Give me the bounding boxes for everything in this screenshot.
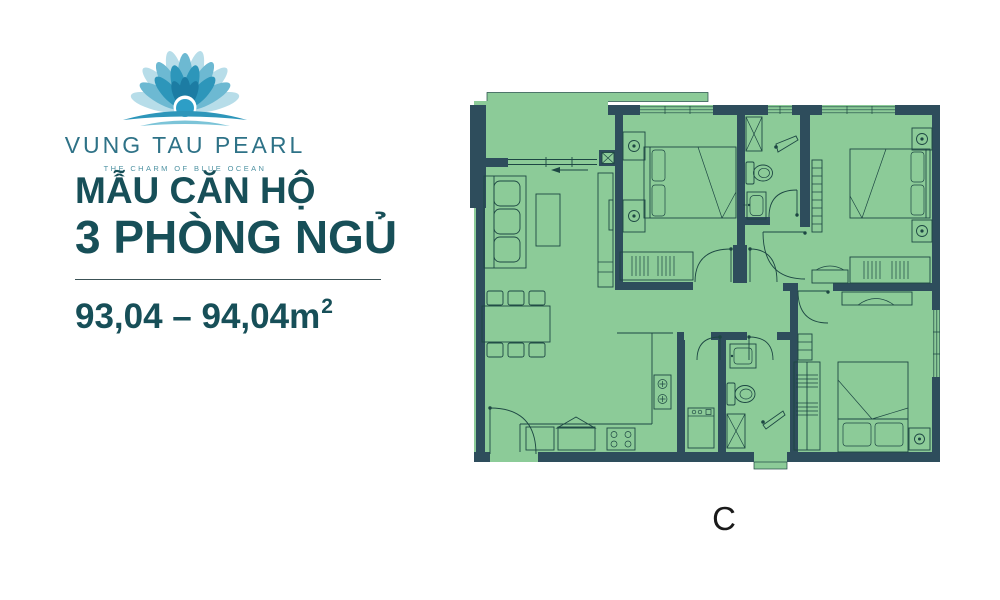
floor-plan xyxy=(460,92,940,482)
floor-plan-svg xyxy=(460,92,940,482)
washing-machine xyxy=(746,117,762,151)
shaft-box xyxy=(727,414,745,448)
apartment-info: MẪU CĂN HỘ 3 PHÒNG NGỦ 93,04 – 94,04m2 xyxy=(75,172,405,337)
lotus-flower-icon xyxy=(100,18,270,138)
exterior-ledge xyxy=(487,93,708,102)
apartment-type-line1: MẪU CĂN HỘ xyxy=(75,172,405,211)
service-ledge xyxy=(754,462,787,469)
area-exponent: 2 xyxy=(321,295,333,318)
apartment-type-line2: 3 PHÒNG NGỦ xyxy=(75,213,405,263)
area-value: 93,04 – 94,04m xyxy=(75,297,320,336)
brand-name: VUNG TAU PEARL xyxy=(55,132,315,159)
brand-block: VUNG TAU PEARL THE CHARM OF BLUE OCEAN xyxy=(55,18,315,173)
area-range: 93,04 – 94,04m2 xyxy=(75,297,405,337)
unit-label: C xyxy=(700,500,748,538)
divider xyxy=(75,279,381,281)
